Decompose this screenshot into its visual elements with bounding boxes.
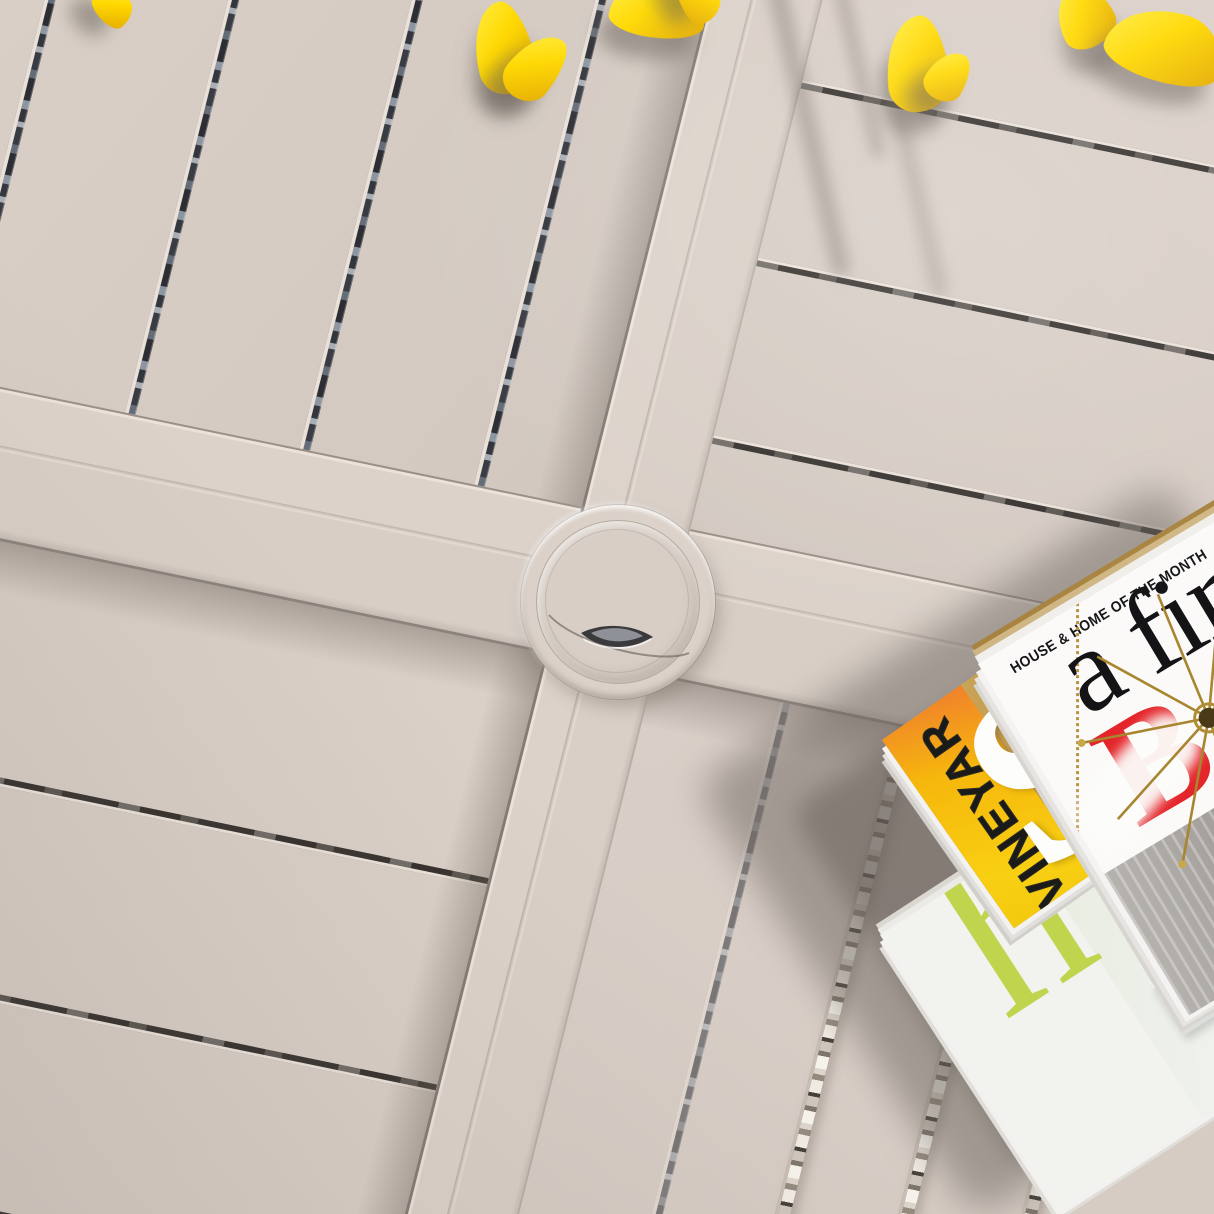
- photo-stage: h VINEYAR St HOUSE & HOME OF THE MONTH a…: [0, 0, 1214, 1214]
- grommet-cable-slot: [521, 505, 715, 699]
- umbrella-grommet: [521, 505, 715, 699]
